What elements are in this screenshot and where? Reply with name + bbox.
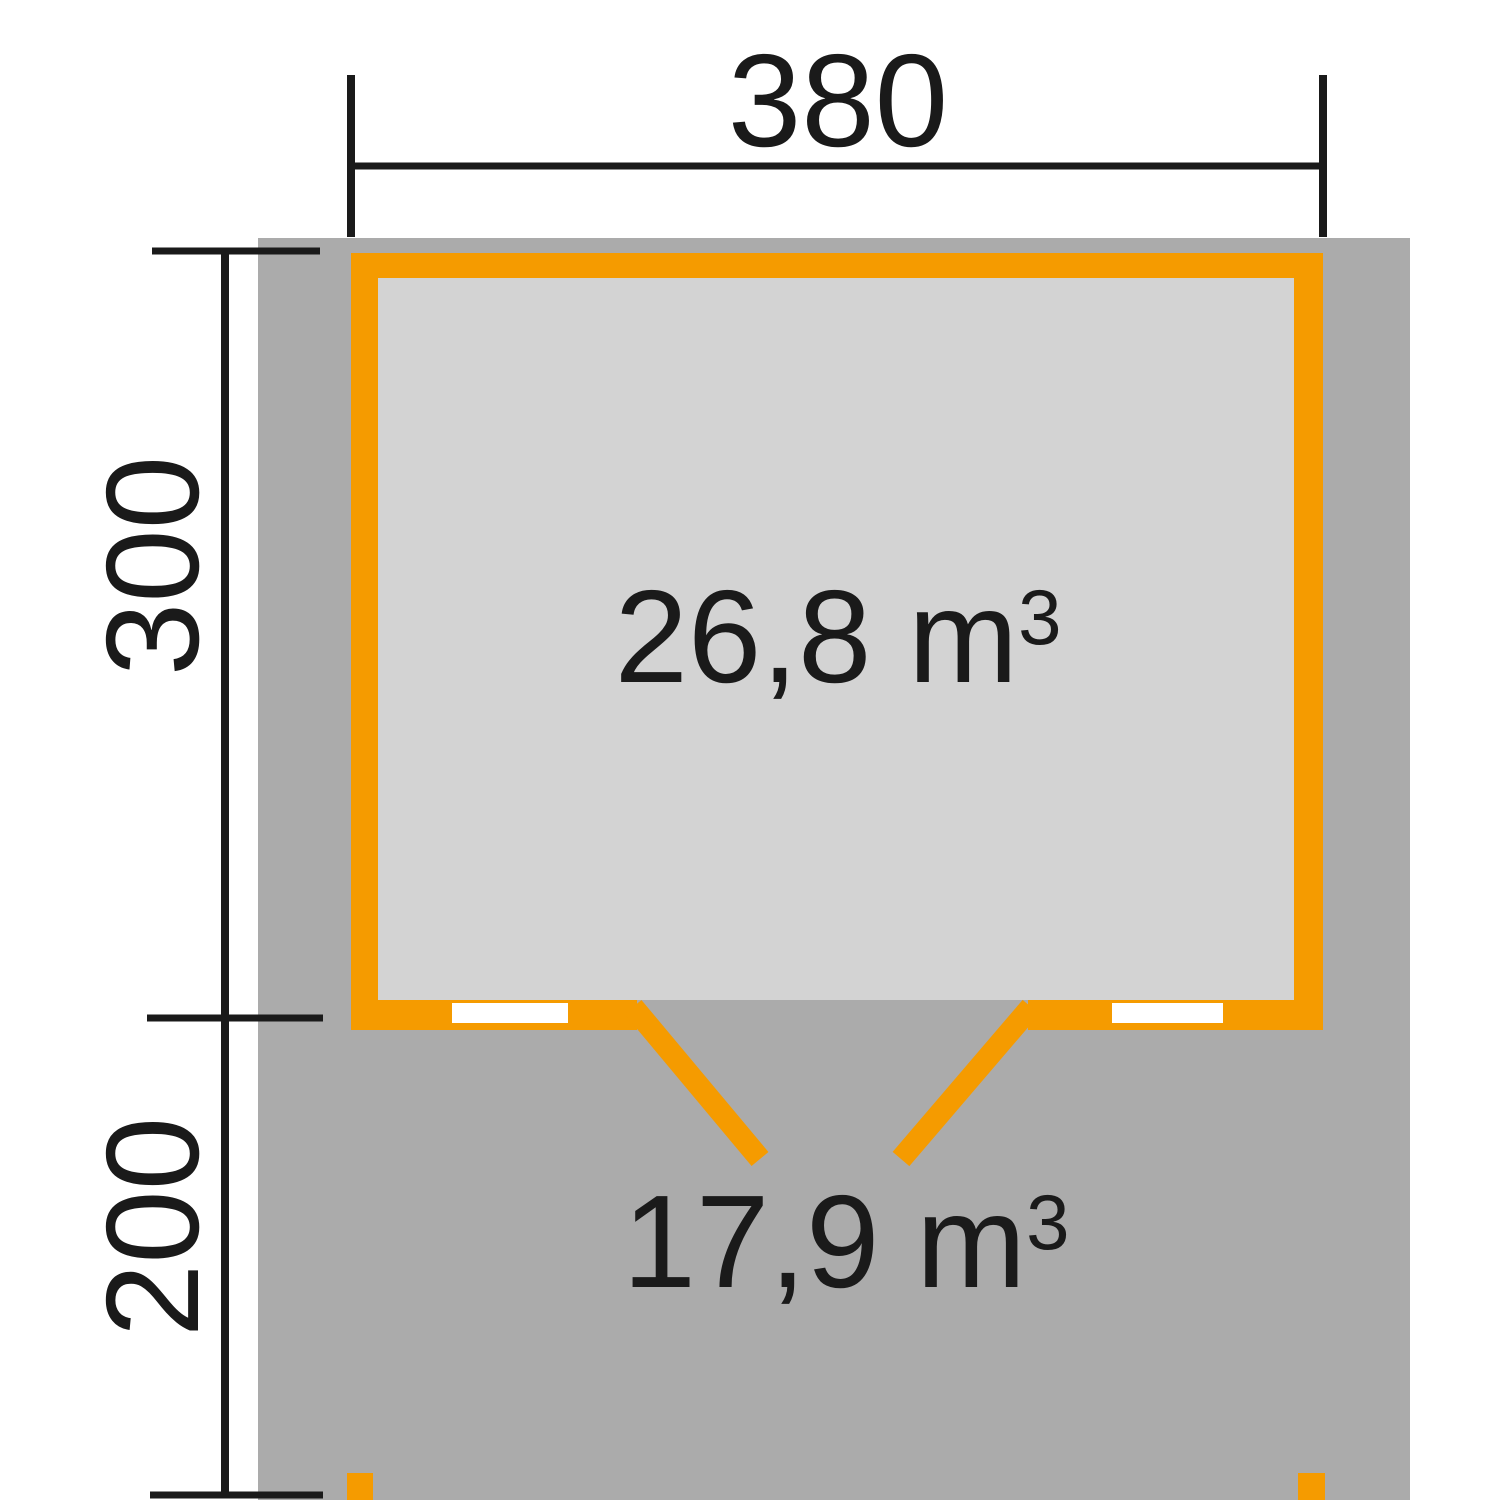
terrace-post-right [1298, 1473, 1325, 1500]
terrace-post-left [347, 1473, 373, 1500]
house-volume-label: 26,8 m3 [615, 563, 1062, 710]
terrace-depth-dimension-label: 200 [79, 1117, 226, 1337]
terrace-volume-value: 17,9 m [623, 1168, 1027, 1315]
house-volume-value: 26,8 m [615, 563, 1019, 710]
window-right [1112, 1003, 1223, 1023]
terrace-volume-exponent: 3 [1026, 1178, 1069, 1266]
floor-plan-page: 380 300 200 26,8 m3 17,9 m3 [0, 0, 1500, 1500]
terrace-volume-label: 17,9 m3 [623, 1168, 1070, 1315]
house-volume-exponent: 3 [1018, 573, 1061, 661]
door-opening [637, 1000, 1028, 1030]
house-depth-dimension-label: 300 [79, 456, 226, 676]
floor-plan-diagram: 380 300 200 26,8 m3 17,9 m3 [0, 0, 1500, 1500]
window-left [452, 1003, 568, 1023]
width-dimension-label: 380 [728, 27, 948, 174]
